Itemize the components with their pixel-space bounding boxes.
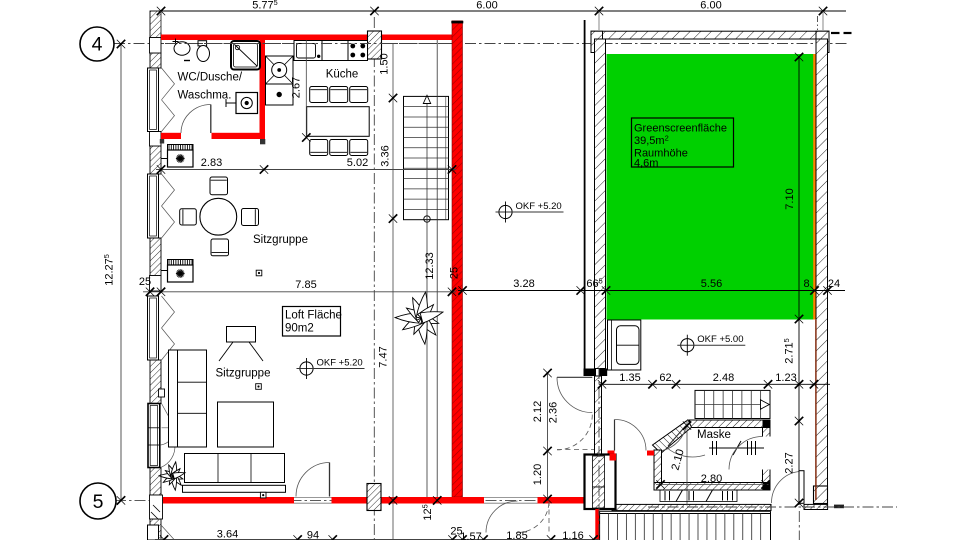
svg-text:2.80: 2.80 [701, 473, 722, 485]
svg-text:25: 25 [139, 276, 151, 288]
svg-text:1.23: 1.23 [775, 372, 796, 384]
svg-text:2.36: 2.36 [548, 402, 560, 423]
svg-text:2.12: 2.12 [532, 401, 544, 422]
svg-text:1.57: 1.57 [460, 531, 481, 540]
svg-text:Loft Fläche: Loft Fläche [285, 310, 342, 322]
svg-text:8: 8 [803, 278, 809, 290]
svg-text:3.64: 3.64 [217, 529, 238, 540]
svg-text:4: 4 [92, 34, 103, 56]
svg-text:WC/Dusche/: WC/Dusche/ [178, 72, 243, 84]
svg-text:90m2: 90m2 [285, 323, 314, 335]
svg-text:Küche: Küche [326, 69, 359, 81]
svg-text:62: 62 [659, 372, 671, 384]
svg-text:1.85: 1.85 [506, 530, 527, 540]
svg-text:7.85: 7.85 [295, 279, 316, 291]
svg-text:2.83: 2.83 [201, 157, 222, 169]
svg-text:7.10: 7.10 [784, 188, 796, 209]
svg-text:25: 25 [449, 267, 461, 279]
svg-text:1.20: 1.20 [532, 464, 544, 485]
svg-text:Maske: Maske [697, 429, 731, 441]
svg-text:Waschma.: Waschma. [178, 90, 232, 102]
svg-text:Greenscreenfläche: Greenscreenfläche [634, 123, 727, 135]
svg-text:OKF +5.00: OKF +5.00 [697, 334, 743, 345]
svg-text:5.56: 5.56 [701, 278, 722, 290]
svg-text:1.50: 1.50 [379, 53, 391, 74]
svg-text:2.27: 2.27 [784, 452, 796, 473]
svg-text:3.36: 3.36 [380, 145, 392, 166]
svg-text:7.47: 7.47 [378, 346, 390, 367]
svg-text:OKF +5.20: OKF +5.20 [317, 357, 363, 368]
svg-text:4,6m: 4,6m [634, 158, 658, 170]
svg-text:Sitzgruppe: Sitzgruppe [216, 368, 271, 380]
svg-text:OKF +5.20: OKF +5.20 [516, 201, 562, 212]
svg-text:2.67: 2.67 [291, 77, 303, 98]
svg-text:5: 5 [93, 491, 104, 513]
svg-text:94: 94 [307, 530, 319, 540]
svg-text:6.00: 6.00 [700, 0, 721, 12]
svg-text:12.33: 12.33 [424, 252, 436, 280]
svg-text:39,5m2: 39,5m2 [634, 134, 669, 148]
svg-text:1.16: 1.16 [562, 530, 583, 540]
svg-text:12.275: 12.275 [102, 254, 116, 286]
svg-text:Sitzgruppe: Sitzgruppe [253, 234, 308, 246]
svg-text:6.00: 6.00 [476, 0, 497, 12]
svg-text:3.28: 3.28 [513, 278, 534, 290]
svg-text:24: 24 [828, 278, 840, 290]
svg-text:5.02: 5.02 [347, 157, 368, 169]
svg-text:1.35: 1.35 [619, 372, 640, 384]
svg-text:2.48: 2.48 [713, 372, 734, 384]
